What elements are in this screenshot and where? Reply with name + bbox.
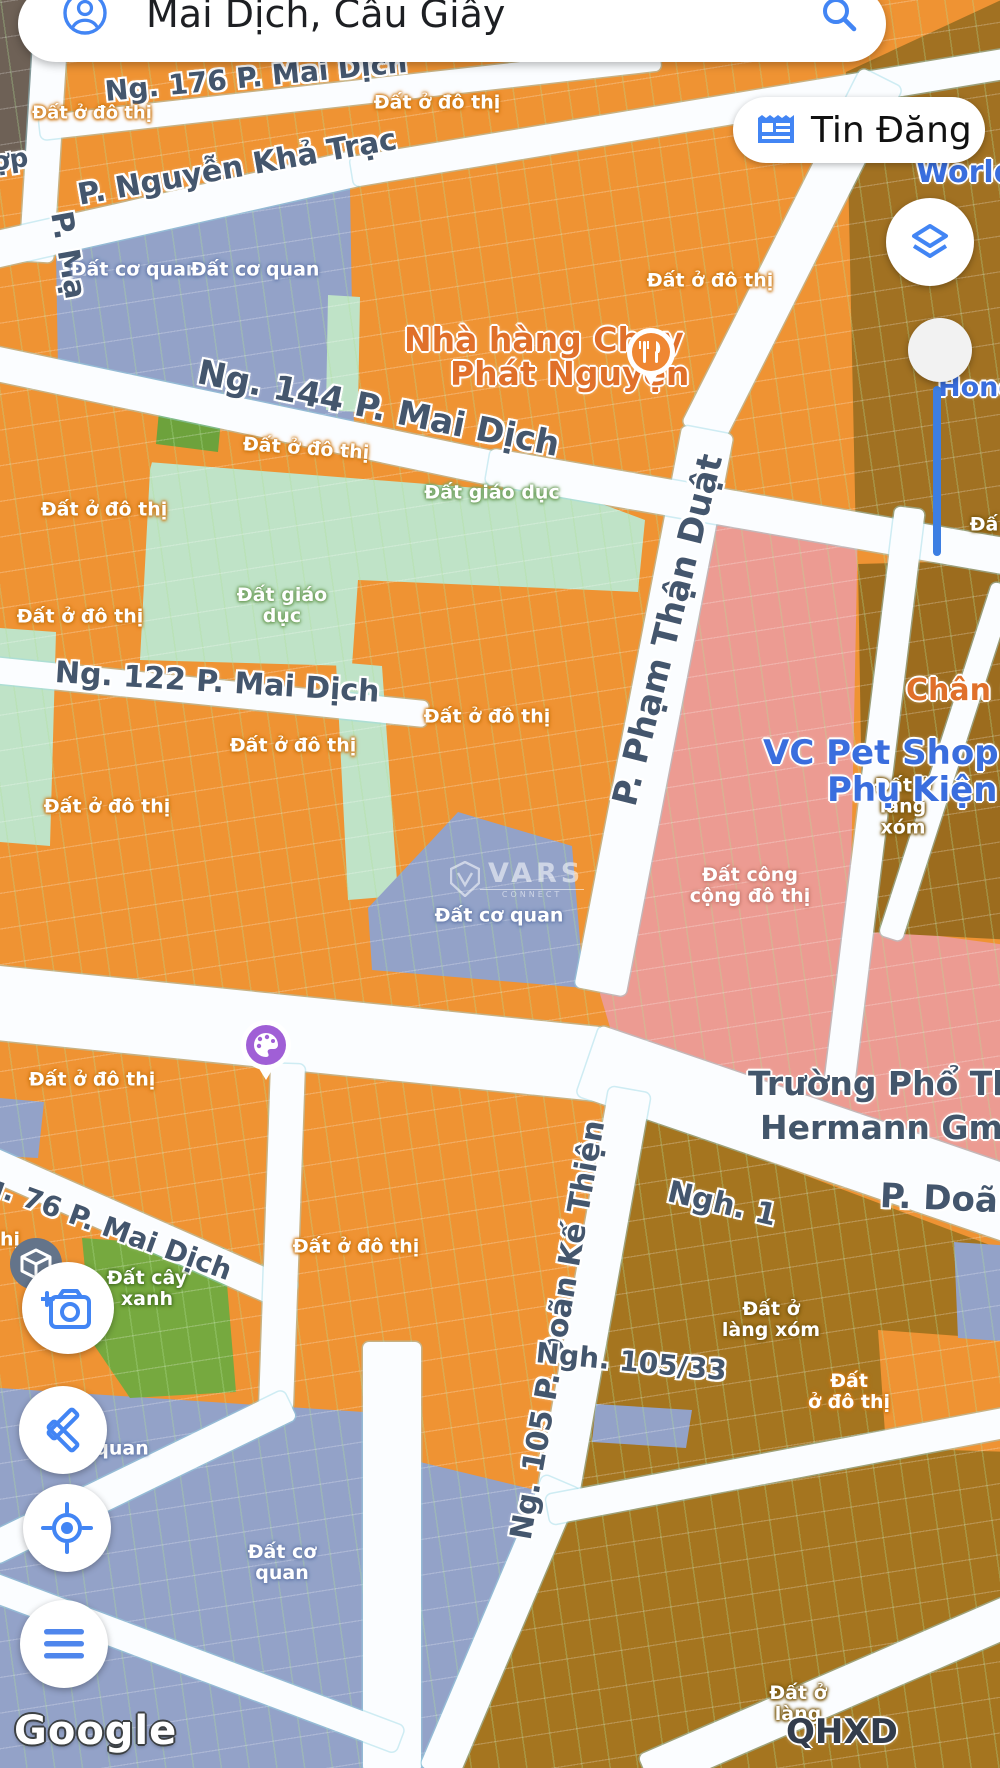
zone-label: Đất ở đô thị (230, 736, 357, 757)
zone-label: Đất ở đô thị (32, 103, 152, 124)
zone-label: Đất ở đô thị (293, 1237, 420, 1258)
zone-label: Đất cơ quan (191, 260, 320, 281)
pencil-ruler-icon (38, 1405, 88, 1455)
vars-logo-icon (450, 861, 480, 897)
zone-label: Đất cây xanh (107, 1268, 187, 1310)
account-icon[interactable] (62, 0, 108, 36)
route-line (933, 386, 941, 556)
vars-watermark: VARS CONNECT (450, 858, 584, 899)
zone-label: Đất công cộng đô thị (690, 865, 810, 907)
zone-label: Đất cơ quan (248, 1542, 317, 1584)
zone-label: Đất ở đô thị (44, 797, 171, 818)
qhxd-label: QHXD (786, 1712, 898, 1752)
zone-label: Đất ở đô thị (808, 1371, 890, 1413)
tin-dang-button[interactable]: Tin Đăng (733, 97, 985, 163)
zone-label: Đất cơ quan (435, 906, 564, 927)
google-logo: Google (14, 1708, 177, 1754)
zone-label: Đất cơ quan (71, 260, 200, 281)
zone-label: Đất giáo dục (237, 585, 327, 627)
hamburger-icon (42, 1627, 86, 1661)
vars-subtext: CONNECT (480, 889, 584, 899)
palette-marker[interactable] (238, 1018, 294, 1086)
search-input[interactable]: Mai Dịch, Cầu Giấy (146, 0, 505, 36)
poi-pet-shop-line1: VC Pet Shop - Th (763, 733, 1000, 773)
road-v2 (363, 1342, 421, 1768)
street-label-op-partial: ợp (0, 143, 30, 178)
menu-button[interactable] (20, 1600, 108, 1688)
zone-label: Đất giáo dục (424, 483, 559, 504)
poi-school-line1: Trường Phổ Th (748, 1064, 1000, 1103)
map-screen: Ng. 176 P. Mai Dịch P. Nguyễn Khả Trạc N… (0, 0, 1000, 1768)
tools-button[interactable] (19, 1386, 107, 1474)
zone-label: Đất ở đô thị (41, 500, 168, 521)
circle-button[interactable] (908, 318, 972, 382)
search-icon[interactable] (816, 0, 862, 37)
vars-text: VARS (488, 858, 584, 889)
search-bar[interactable]: Mai Dịch, Cầu Giấy (18, 0, 886, 62)
poi-chan-partial: Chân Ch (906, 673, 1000, 708)
map-canvas[interactable]: Ng. 176 P. Mai Dịch P. Nguyễn Khả Trạc N… (0, 0, 1000, 1768)
zone-label: Đấ (970, 515, 999, 536)
newspaper-icon (755, 110, 797, 150)
poi-school-line2: Hermann Gme (760, 1108, 1000, 1147)
street-label-p-doan: P. Doãn (879, 1176, 1000, 1222)
fork-knife-icon (632, 333, 670, 371)
layers-button[interactable] (886, 198, 974, 286)
restaurant-marker[interactable] (625, 326, 677, 392)
poi-pet-shop-line2: Phụ Kiện Thu (827, 770, 1000, 810)
camera-plus-icon (41, 1283, 95, 1333)
zone-label: Đất ở đô thị (424, 707, 551, 728)
layers-icon (906, 218, 954, 266)
camera-button[interactable] (22, 1262, 114, 1354)
zone-label: Đất ở đô thị (17, 607, 144, 628)
zone-label: Đất ở đô thị (647, 271, 774, 292)
zone-label: Đất ở đô thị (374, 93, 501, 114)
locate-button[interactable] (23, 1484, 111, 1572)
zone-label: Đất ở đô thị (29, 1070, 156, 1091)
zone-label: Đất ở làng xóm (722, 1299, 820, 1341)
tin-dang-label: Tin Đăng (811, 110, 972, 151)
gps-crosshair-icon (41, 1502, 93, 1554)
